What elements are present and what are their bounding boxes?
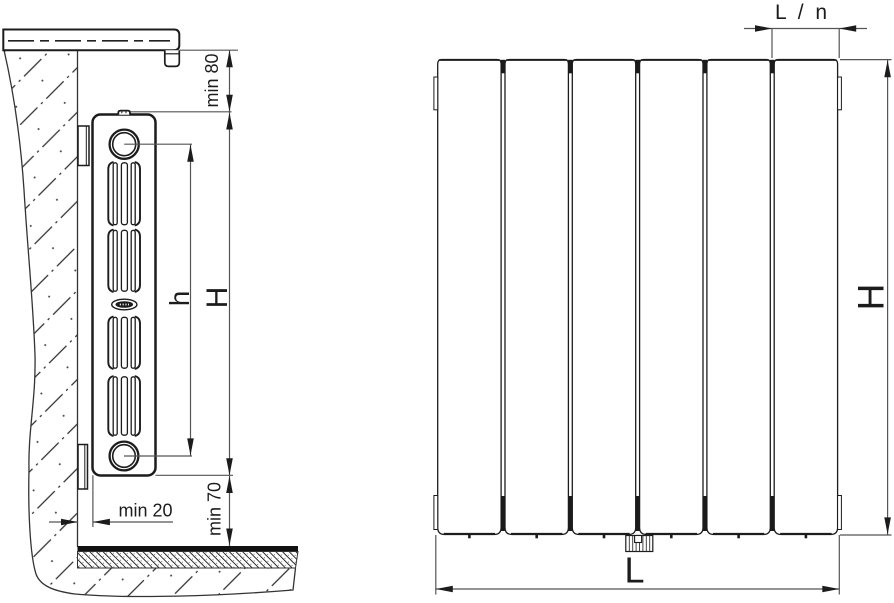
- svg-text:H: H: [850, 284, 891, 311]
- svg-text:min 70: min 70: [205, 482, 225, 536]
- svg-text:min 20: min 20: [118, 501, 172, 521]
- svg-text:H: H: [201, 287, 234, 309]
- svg-text:L: L: [624, 550, 644, 591]
- svg-text:min 80: min 80: [202, 53, 222, 107]
- svg-text:h: h: [164, 291, 195, 307]
- svg-text:L / n: L / n: [775, 1, 830, 24]
